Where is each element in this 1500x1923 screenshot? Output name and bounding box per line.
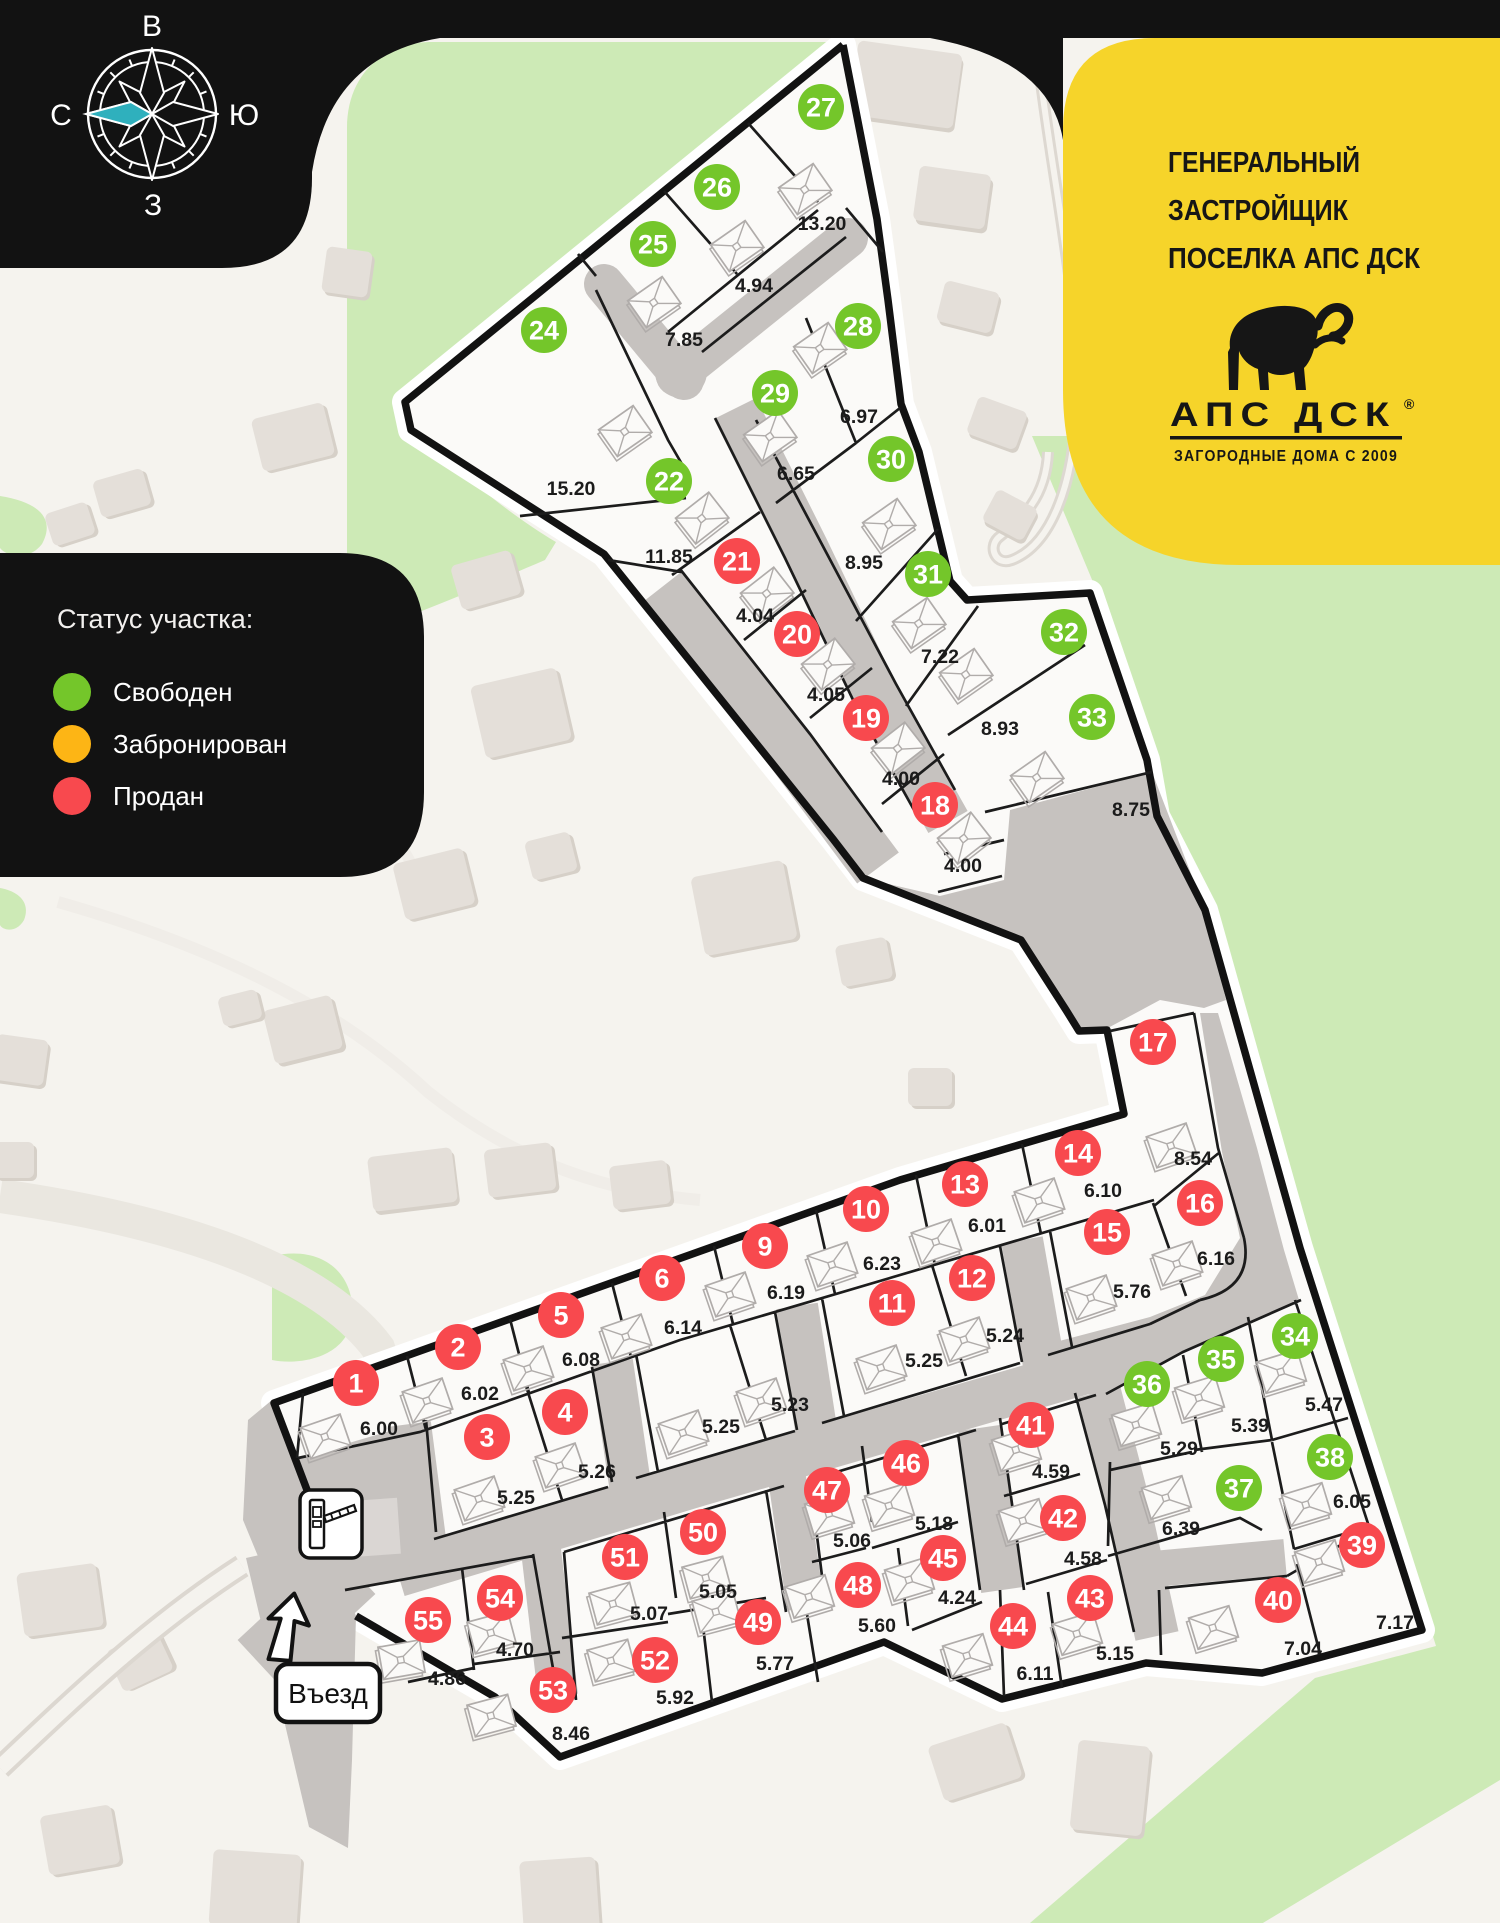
svg-text:6.01: 6.01: [968, 1215, 1006, 1237]
svg-text:11: 11: [878, 1289, 907, 1319]
svg-text:6.10: 6.10: [1084, 1180, 1122, 1202]
svg-text:5.05: 5.05: [699, 1581, 737, 1603]
svg-text:44: 44: [998, 1612, 1028, 1642]
svg-text:28: 28: [843, 312, 873, 342]
svg-text:5: 5: [553, 1301, 568, 1331]
svg-text:5.07: 5.07: [630, 1603, 668, 1625]
svg-text:53: 53: [538, 1676, 568, 1706]
svg-text:1: 1: [348, 1369, 363, 1399]
svg-text:20: 20: [782, 620, 812, 650]
svg-text:5.77: 5.77: [756, 1653, 794, 1675]
svg-text:24: 24: [529, 316, 559, 346]
svg-text:6.14: 6.14: [664, 1317, 702, 1339]
svg-text:3: 3: [479, 1423, 494, 1453]
svg-text:55: 55: [413, 1606, 443, 1636]
svg-text:6.39: 6.39: [1162, 1518, 1200, 1540]
svg-text:С: С: [50, 99, 72, 132]
svg-text:38: 38: [1315, 1443, 1345, 1473]
svg-text:ЗАСТРОЙЩИК: ЗАСТРОЙЩИК: [1168, 193, 1348, 227]
svg-text:7.04: 7.04: [1284, 1638, 1322, 1660]
svg-text:30: 30: [876, 445, 906, 475]
svg-text:Статус участка:: Статус участка:: [57, 604, 253, 634]
svg-text:34: 34: [1280, 1322, 1310, 1352]
svg-text:АПС ДСК: АПС ДСК: [1170, 396, 1396, 434]
svg-text:5.23: 5.23: [771, 1394, 809, 1416]
svg-text:6.23: 6.23: [863, 1253, 901, 1275]
svg-text:Продан: Продан: [113, 781, 204, 811]
svg-text:6.00: 6.00: [360, 1418, 398, 1440]
svg-text:36: 36: [1132, 1370, 1162, 1400]
svg-text:39: 39: [1347, 1531, 1377, 1561]
svg-text:6.08: 6.08: [562, 1349, 600, 1371]
svg-text:ЗАГОРОДНЫЕ ДОМА С 2009: ЗАГОРОДНЫЕ ДОМА С 2009: [1174, 448, 1398, 465]
svg-text:4.04: 4.04: [736, 605, 774, 627]
svg-text:4.05: 4.05: [807, 684, 845, 706]
svg-text:32: 32: [1049, 618, 1079, 648]
svg-text:5.15: 5.15: [1096, 1643, 1134, 1665]
svg-text:6: 6: [654, 1264, 669, 1294]
svg-text:8.93: 8.93: [981, 718, 1019, 740]
svg-text:37: 37: [1224, 1474, 1254, 1504]
svg-text:4.70: 4.70: [496, 1639, 534, 1661]
svg-text:4.86: 4.86: [428, 1668, 466, 1690]
svg-text:5.18: 5.18: [915, 1513, 953, 1535]
svg-text:17: 17: [1138, 1028, 1168, 1058]
svg-text:11.85: 11.85: [645, 546, 693, 568]
svg-text:Забронирован: Забронирован: [113, 729, 287, 759]
svg-text:4.94: 4.94: [735, 275, 773, 297]
svg-text:22: 22: [654, 467, 684, 497]
svg-text:13: 13: [950, 1170, 980, 1200]
svg-text:4.59: 4.59: [1032, 1461, 1070, 1483]
svg-text:52: 52: [640, 1646, 670, 1676]
svg-text:6.97: 6.97: [840, 406, 878, 428]
svg-text:43: 43: [1075, 1584, 1105, 1614]
svg-text:Свободен: Свободен: [113, 677, 233, 707]
svg-text:25: 25: [638, 230, 668, 260]
svg-text:6.65: 6.65: [777, 463, 815, 485]
svg-text:7.22: 7.22: [921, 646, 959, 668]
svg-text:42: 42: [1048, 1504, 1078, 1534]
svg-text:35: 35: [1206, 1345, 1236, 1375]
svg-text:15: 15: [1092, 1218, 1122, 1248]
svg-text:5.92: 5.92: [656, 1687, 694, 1709]
svg-text:5.24: 5.24: [986, 1325, 1024, 1347]
svg-text:5.60: 5.60: [858, 1615, 896, 1637]
svg-text:4.58: 4.58: [1064, 1548, 1102, 1570]
svg-text:6.05: 6.05: [1333, 1491, 1371, 1513]
svg-text:4.00: 4.00: [882, 768, 920, 790]
svg-text:19: 19: [851, 704, 881, 734]
svg-text:5.25: 5.25: [497, 1487, 535, 1509]
svg-text:ГЕНЕРАЛЬНЫЙ: ГЕНЕРАЛЬНЫЙ: [1168, 145, 1360, 179]
svg-text:В: В: [142, 10, 162, 43]
svg-text:16: 16: [1185, 1189, 1215, 1219]
svg-text:7.17: 7.17: [1376, 1612, 1414, 1634]
svg-text:47: 47: [812, 1476, 842, 1506]
svg-text:6.11: 6.11: [1017, 1663, 1054, 1685]
svg-text:51: 51: [610, 1543, 640, 1573]
svg-text:Ю: Ю: [229, 99, 259, 132]
svg-text:18: 18: [920, 791, 950, 821]
svg-text:12: 12: [957, 1264, 987, 1294]
svg-text:4.00: 4.00: [944, 855, 982, 877]
svg-text:46: 46: [891, 1449, 921, 1479]
svg-text:13.20: 13.20: [798, 213, 847, 235]
svg-text:8.95: 8.95: [845, 552, 883, 574]
svg-text:8.46: 8.46: [552, 1723, 590, 1745]
svg-text:27: 27: [806, 93, 836, 123]
svg-text:4.24: 4.24: [938, 1587, 976, 1609]
svg-text:5.76: 5.76: [1113, 1281, 1151, 1303]
svg-text:®: ®: [1404, 396, 1415, 412]
svg-text:5.25: 5.25: [905, 1350, 943, 1372]
svg-text:21: 21: [722, 547, 752, 577]
svg-text:40: 40: [1263, 1586, 1293, 1616]
svg-text:4: 4: [557, 1398, 572, 1428]
svg-text:54: 54: [485, 1584, 515, 1614]
svg-text:5.06: 5.06: [833, 1530, 871, 1552]
svg-text:41: 41: [1016, 1411, 1046, 1441]
svg-text:9: 9: [757, 1232, 772, 1262]
svg-text:49: 49: [743, 1608, 773, 1638]
svg-text:50: 50: [688, 1518, 718, 1548]
svg-text:5.29: 5.29: [1160, 1438, 1198, 1460]
svg-text:26: 26: [702, 173, 732, 203]
svg-text:31: 31: [913, 560, 943, 590]
svg-text:45: 45: [928, 1544, 958, 1574]
svg-text:6.16: 6.16: [1197, 1248, 1235, 1270]
svg-text:6.02: 6.02: [461, 1383, 499, 1405]
svg-text:10: 10: [851, 1195, 881, 1225]
svg-text:5.47: 5.47: [1305, 1394, 1343, 1416]
svg-text:33: 33: [1077, 703, 1107, 733]
svg-text:8.54: 8.54: [1174, 1148, 1212, 1170]
svg-text:7.85: 7.85: [665, 329, 703, 351]
svg-text:5.39: 5.39: [1231, 1415, 1269, 1437]
svg-text:48: 48: [843, 1571, 873, 1601]
svg-text:ПОСЕЛКА АПС ДСК: ПОСЕЛКА АПС ДСК: [1168, 243, 1420, 275]
svg-text:2: 2: [450, 1333, 465, 1363]
svg-text:5.25: 5.25: [702, 1416, 740, 1438]
svg-text:14: 14: [1063, 1139, 1093, 1169]
svg-text:15.20: 15.20: [547, 478, 596, 500]
svg-text:8.75: 8.75: [1112, 799, 1150, 821]
svg-text:5.26: 5.26: [578, 1461, 616, 1483]
svg-text:Въезд: Въезд: [288, 1678, 368, 1709]
svg-text:6.19: 6.19: [767, 1282, 805, 1304]
svg-text:З: З: [144, 189, 162, 222]
svg-text:29: 29: [760, 379, 790, 409]
